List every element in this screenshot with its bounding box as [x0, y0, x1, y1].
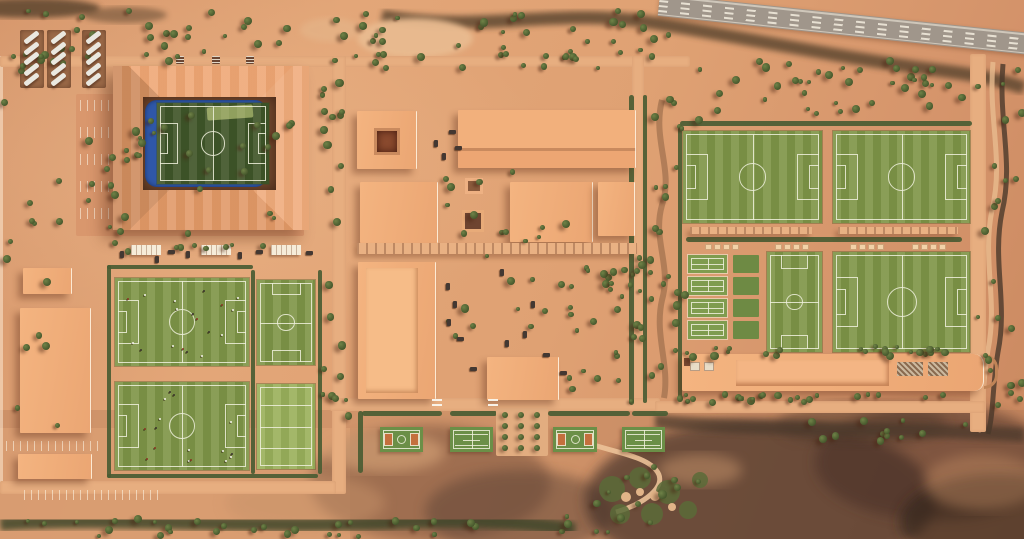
tree [157, 532, 165, 539]
player [221, 304, 223, 306]
tree [876, 392, 882, 398]
tree [792, 77, 799, 84]
tree [735, 394, 742, 401]
tree [284, 530, 292, 538]
pitch-line [201, 131, 225, 155]
utility-pad [714, 244, 721, 250]
car [470, 367, 477, 371]
tree [656, 229, 663, 236]
stadium-bowl [143, 97, 276, 190]
tree [995, 315, 1001, 321]
player [144, 294, 146, 296]
building-north-hall [458, 110, 636, 168]
pitch-line [160, 123, 178, 164]
pitch-line [455, 434, 488, 435]
hedge [358, 411, 363, 473]
tree [337, 533, 341, 537]
car [505, 340, 509, 347]
tree [395, 16, 399, 20]
tree [213, 528, 220, 535]
tree [618, 50, 623, 55]
warmup-pad [733, 299, 759, 317]
tree [651, 464, 658, 471]
pitch-line [627, 445, 660, 446]
tree [650, 35, 658, 43]
bus-bay [82, 30, 106, 88]
tree [907, 73, 915, 81]
tree [75, 520, 79, 524]
utility-pad [859, 244, 866, 250]
pitch-line [272, 350, 301, 362]
tree [530, 277, 535, 282]
tree [930, 83, 934, 87]
tree [774, 392, 782, 400]
tree [786, 61, 792, 67]
player [127, 298, 129, 300]
building-mid-west [360, 182, 438, 243]
tree [666, 96, 674, 104]
pitch-line [118, 300, 139, 344]
tree [194, 518, 201, 525]
tree [918, 90, 926, 98]
tree [570, 26, 576, 32]
parking-stalls [24, 490, 158, 500]
tree [443, 176, 450, 183]
utility-pad [939, 244, 946, 250]
pitch-line [887, 287, 917, 317]
player [174, 300, 176, 302]
building-west-small [23, 268, 72, 294]
tree [170, 30, 178, 38]
utility-pad [850, 244, 857, 250]
tree [602, 280, 610, 288]
match-pitch-ne-4 [833, 252, 970, 352]
car [531, 301, 535, 308]
tree [807, 80, 811, 84]
pitch-line [584, 433, 593, 446]
tree [447, 183, 455, 191]
tree [153, 520, 157, 524]
pitch-line [691, 302, 724, 314]
pitch-line [691, 258, 724, 270]
player [173, 394, 175, 396]
pitch-line [957, 165, 967, 189]
tree [644, 472, 650, 478]
tree [379, 27, 386, 34]
small-pitch-west-1 [257, 280, 315, 365]
rooftop-upper-level [366, 268, 418, 393]
car [442, 153, 446, 160]
basketball-court [553, 427, 597, 452]
tree [795, 395, 801, 401]
tree [480, 18, 488, 26]
tree [581, 369, 586, 374]
tree [501, 45, 506, 50]
courtyard-pergola [462, 210, 484, 232]
highway [658, 0, 1024, 58]
tree [261, 524, 267, 530]
tree [327, 532, 333, 538]
building-south-hall [358, 262, 436, 399]
hedge [318, 270, 322, 474]
tree [145, 22, 153, 30]
tree [995, 402, 1002, 409]
tree [379, 38, 386, 45]
building-mid-east [510, 182, 593, 242]
car [238, 252, 242, 259]
tree [178, 244, 184, 250]
tree [510, 15, 517, 22]
pitch-line [902, 255, 903, 349]
pitch-line [260, 283, 312, 362]
tree [624, 475, 630, 481]
tree [762, 63, 770, 71]
tree [722, 391, 729, 398]
pitch-line [169, 413, 195, 439]
tree [714, 107, 721, 114]
tree [619, 21, 626, 28]
tree [649, 296, 654, 301]
player [186, 351, 188, 353]
tree [126, 8, 132, 14]
tree [165, 524, 172, 531]
pitch-line [691, 324, 724, 336]
player [146, 458, 148, 460]
training-pitch-west-1 [115, 278, 249, 366]
tree [513, 12, 518, 17]
pitch-line [797, 154, 819, 200]
tree [912, 78, 917, 83]
tree [97, 534, 101, 538]
tree [926, 102, 934, 110]
tree [609, 18, 617, 26]
building-south-small [487, 357, 559, 400]
tree [673, 348, 678, 353]
tree [168, 530, 172, 534]
hedge [251, 270, 255, 474]
tree [901, 84, 909, 92]
tree [499, 230, 504, 235]
red-inner-courtyard [374, 128, 400, 155]
tree [586, 268, 590, 272]
pitch-line [786, 294, 803, 311]
padel-court [688, 277, 727, 295]
tree [321, 366, 327, 372]
car [186, 251, 190, 258]
tree [453, 333, 458, 338]
parking-shade-canopy [271, 245, 301, 255]
pitch-line [708, 302, 709, 314]
tree [56, 178, 62, 184]
pitch-line [557, 433, 566, 446]
stadium-vent [176, 56, 184, 64]
tree [995, 198, 1001, 204]
car [500, 269, 504, 276]
player [159, 418, 161, 420]
tree [333, 17, 340, 24]
pitch-line [644, 430, 645, 449]
tree [112, 240, 118, 246]
curved-end-wall [984, 354, 998, 389]
tree [340, 32, 348, 40]
player [221, 334, 223, 336]
tree [276, 40, 282, 46]
tree [814, 111, 819, 116]
pitch-line [260, 387, 312, 466]
tree [575, 328, 580, 333]
utility-pad [793, 244, 800, 250]
padel-court [688, 299, 727, 317]
tree [178, 244, 182, 248]
padel-court [688, 255, 727, 273]
hedge [450, 411, 497, 416]
tree [674, 484, 681, 491]
east-long-building [682, 354, 984, 391]
rooftop-pad [690, 362, 700, 371]
tree [363, 11, 369, 17]
utility-pad [784, 244, 791, 250]
tree [600, 270, 608, 278]
tree [716, 90, 723, 97]
player [176, 308, 178, 310]
tree [648, 270, 653, 275]
rooftop-pad [704, 362, 714, 371]
bus-bay [20, 30, 44, 88]
tree [518, 12, 525, 19]
tree [112, 518, 118, 524]
tree [866, 392, 871, 397]
car [256, 250, 263, 254]
tree [815, 393, 820, 398]
pitch-line [182, 281, 183, 363]
tree [392, 517, 400, 525]
tree [221, 523, 227, 529]
tree [605, 274, 612, 281]
shaded-bench-row [690, 227, 812, 234]
pitch-line [691, 280, 724, 292]
player [196, 318, 198, 320]
player [154, 447, 156, 449]
tree [608, 287, 613, 292]
pitch-line [691, 264, 724, 265]
pitch-line [625, 430, 662, 449]
player [231, 453, 233, 455]
pitch-line [957, 289, 967, 315]
tree [568, 312, 574, 318]
basketball-court [380, 427, 423, 452]
tree [963, 422, 968, 427]
tree [565, 514, 569, 518]
tree [503, 229, 509, 235]
player [188, 449, 190, 451]
parking-shade-canopy [201, 245, 231, 255]
pitch-line [118, 385, 246, 467]
tree [523, 29, 530, 36]
tree [651, 113, 659, 121]
tree [185, 34, 191, 40]
tree [901, 418, 905, 422]
tree [478, 24, 484, 30]
tree [654, 185, 659, 190]
tree [661, 281, 667, 287]
utility-pad [877, 244, 884, 250]
padel-court [688, 321, 727, 339]
pitch-line [686, 154, 708, 200]
tree [559, 529, 565, 535]
pitch-line [258, 133, 266, 154]
pitch-line [627, 434, 660, 435]
hedge [107, 265, 111, 478]
parking-shade-canopy [131, 245, 161, 255]
tree [3, 255, 11, 263]
tree [161, 42, 168, 49]
tree [929, 66, 936, 73]
pitch-line [691, 286, 724, 287]
tree [208, 9, 215, 16]
aerial-scene [0, 0, 1024, 539]
tree [893, 65, 900, 72]
tree [649, 372, 655, 378]
tree [922, 80, 929, 87]
tree [607, 490, 611, 494]
tree [321, 108, 328, 115]
tree [648, 520, 653, 525]
tree [671, 477, 678, 484]
building-courtyard-block [357, 111, 417, 169]
pitch-line [225, 300, 246, 344]
utility-pad [868, 244, 875, 250]
tree [594, 529, 599, 534]
tree [558, 281, 565, 288]
car [446, 283, 450, 290]
tree [202, 49, 206, 53]
player [237, 297, 239, 299]
player [190, 459, 192, 461]
pitch-line [781, 255, 809, 269]
building-west-south [18, 454, 92, 479]
pitch-line [453, 430, 490, 449]
player [222, 450, 224, 452]
shaded-bench-row [838, 227, 958, 234]
rooftop-ridge [736, 360, 889, 386]
tree [620, 294, 625, 299]
player [225, 460, 227, 462]
tree [32, 221, 37, 226]
pitch-line [691, 308, 724, 309]
tree [825, 71, 833, 79]
tree [542, 308, 548, 314]
tree [359, 22, 366, 29]
car [120, 251, 124, 258]
tree [611, 39, 616, 44]
tree [26, 519, 31, 524]
pitch-line [472, 430, 473, 449]
tree [323, 141, 331, 149]
tree [880, 431, 886, 437]
tree [760, 392, 766, 398]
pitch-line [237, 311, 246, 334]
tree [834, 101, 838, 105]
tree [335, 521, 342, 528]
player [182, 348, 184, 350]
tree [798, 79, 803, 84]
utility-pad [775, 244, 782, 250]
tree [890, 81, 895, 86]
pitch-line [277, 314, 294, 331]
tree [1018, 109, 1024, 117]
pitch-line [455, 445, 488, 446]
boundary-wall [0, 56, 3, 484]
tree [647, 256, 654, 263]
tree [348, 520, 353, 525]
car [168, 250, 175, 254]
tree [321, 86, 327, 92]
crosswalk [432, 399, 442, 407]
tree [593, 500, 600, 507]
tree [485, 254, 489, 258]
car [306, 251, 313, 255]
tree [163, 30, 170, 37]
pitch-line [888, 163, 916, 191]
tree [516, 307, 520, 311]
pitch-line [945, 154, 967, 200]
pitch-line [836, 255, 967, 349]
player [164, 398, 166, 400]
tree [663, 184, 668, 189]
pitch-line [686, 134, 819, 220]
tree [854, 393, 861, 400]
tree [756, 58, 763, 65]
tree [134, 515, 142, 523]
tree [658, 490, 666, 498]
tree [590, 318, 597, 325]
hedge [362, 411, 442, 416]
hedge [686, 237, 962, 242]
tree [732, 76, 740, 84]
tree [727, 346, 733, 352]
pitch-line [781, 335, 809, 349]
hedge [680, 121, 972, 126]
match-pitch-ne-3 [767, 252, 822, 352]
pitch-line [169, 309, 195, 335]
pitch-line [260, 427, 312, 428]
hedge [107, 474, 318, 478]
road-south-east [655, 401, 985, 413]
tree [567, 375, 573, 381]
tree [658, 363, 665, 370]
pitch-line [836, 289, 846, 315]
pitch-line [708, 258, 709, 270]
tree [374, 33, 379, 38]
tennis-court [622, 427, 665, 452]
player [155, 427, 157, 429]
tree [845, 78, 853, 86]
tree [470, 323, 476, 329]
tree [1015, 67, 1021, 73]
tree [241, 24, 248, 31]
tree [621, 267, 627, 273]
tree [446, 319, 451, 324]
tree [370, 38, 376, 44]
garden-hedges [599, 467, 708, 525]
tree [638, 48, 643, 53]
pitch-line [836, 165, 846, 189]
tree [585, 39, 590, 44]
tree [877, 437, 884, 444]
utility-pad [930, 244, 937, 250]
tree [884, 428, 890, 434]
tree [594, 375, 601, 382]
